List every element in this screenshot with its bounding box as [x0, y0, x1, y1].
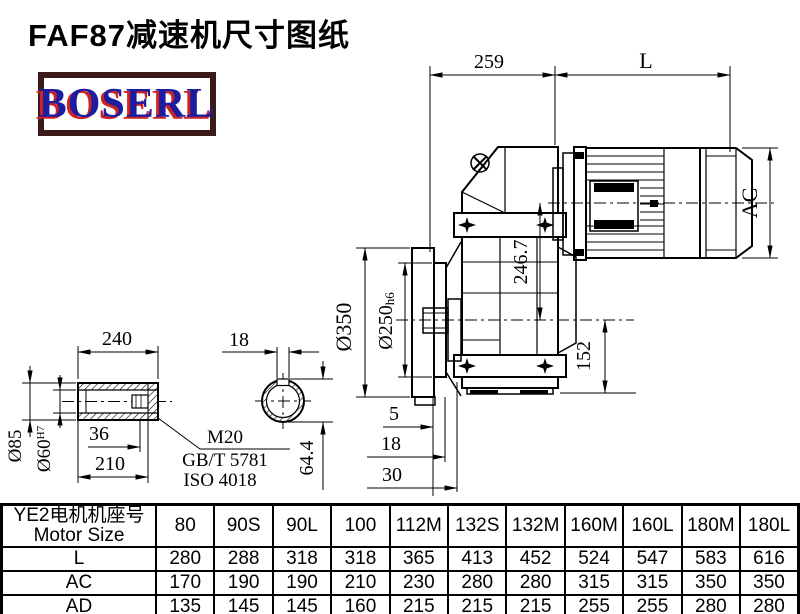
value-L-90L: 318 — [273, 547, 331, 571]
value-L-112M: 365 — [390, 547, 448, 571]
column-header-160M: 160M — [565, 505, 623, 547]
dim-240: 240 — [102, 328, 132, 350]
value-AC-160M: 315 — [565, 571, 623, 595]
dim-30: 30 — [382, 464, 402, 486]
value-L-180M: 583 — [682, 547, 740, 571]
column-header-80: 80 — [156, 505, 214, 547]
value-L-90S: 288 — [214, 547, 272, 571]
column-header-132S: 132S — [448, 505, 506, 547]
column-header-90S: 90S — [214, 505, 272, 547]
dim-152: 152 — [573, 341, 595, 371]
value-L-160L: 547 — [623, 547, 681, 571]
dim-36: 36 — [89, 423, 109, 445]
value-AC-90S: 190 — [214, 571, 272, 595]
column-header-180M: 180M — [682, 505, 740, 547]
value-AD-132M: 215 — [506, 595, 564, 614]
value-L-160M: 524 — [565, 547, 623, 571]
value-L-100: 318 — [331, 547, 389, 571]
table-row-AC: AC170190190210230280280315315350350 — [2, 571, 799, 595]
value-AC-112M: 230 — [390, 571, 448, 595]
label-standard-gb: GB/T 5781 — [182, 450, 268, 471]
value-AD-160M: 255 — [565, 595, 623, 614]
value-AD-180M: 280 — [682, 595, 740, 614]
dim-keyway-height: 64.4 — [296, 441, 318, 476]
motor-size-header: YE2电机机座号Motor Size — [2, 505, 157, 547]
value-AC-100: 210 — [331, 571, 389, 595]
dim-259: 259 — [474, 51, 504, 73]
value-AD-132S: 215 — [448, 595, 506, 614]
dim-spigot-diameter: Ø250h6 — [375, 292, 397, 350]
value-AC-80: 170 — [156, 571, 214, 595]
dim-bore: Ø60H7 — [34, 425, 55, 472]
column-header-132M: 132M — [506, 505, 564, 547]
value-L-132M: 452 — [506, 547, 564, 571]
column-header-112M: 112M — [390, 505, 448, 547]
value-L-80: 280 — [156, 547, 214, 571]
column-header-160L: 160L — [623, 505, 681, 547]
dim-18-face: 18 — [381, 433, 401, 455]
dim-246-7: 246.7 — [510, 240, 532, 285]
centerlines — [62, 203, 776, 429]
value-AD-112M: 215 — [390, 595, 448, 614]
column-header-100: 100 — [331, 505, 389, 547]
value-AC-132S: 280 — [448, 571, 506, 595]
motor-size-table-body: YE2电机机座号Motor Size8090S90L100112M132S132… — [2, 505, 799, 614]
row-label-AD: AD — [2, 595, 157, 614]
value-AD-160L: 255 — [623, 595, 681, 614]
value-AD-100: 160 — [331, 595, 389, 614]
keyway-slot — [277, 379, 289, 386]
motor-size-table: YE2电机机座号Motor Size8090S90L100112M132S132… — [0, 503, 800, 614]
dim-5: 5 — [389, 403, 399, 425]
dim-shaft-od: Ø85 — [5, 430, 26, 463]
dim-210: 210 — [95, 453, 125, 475]
motor-size-header-en: Motor Size — [3, 526, 155, 546]
label-thread: M20 — [207, 427, 243, 448]
value-AD-80: 135 — [156, 595, 214, 614]
value-L-180L: 616 — [740, 547, 798, 571]
dim-L: L — [639, 48, 652, 73]
page: FAF87减速机尺寸图纸 BOSERL — [0, 0, 800, 614]
dim-flange-diameter: Ø350 — [331, 303, 356, 352]
row-label-L: L — [2, 547, 157, 571]
column-header-90L: 90L — [273, 505, 331, 547]
value-AC-90L: 190 — [273, 571, 331, 595]
value-AC-160L: 315 — [623, 571, 681, 595]
value-AC-132M: 280 — [506, 571, 564, 595]
table-row-L: L280288318318365413452524547583616 — [2, 547, 799, 571]
m20-tapped-hole — [132, 395, 148, 408]
value-AC-180L: 350 — [740, 571, 798, 595]
output-flange — [412, 242, 461, 405]
label-standard-iso: ISO 4018 — [183, 470, 256, 491]
dim-AC: AC — [737, 188, 762, 219]
table-row-AD: AD135145145160215215215255255280280 — [2, 595, 799, 614]
value-AD-180L: 280 — [740, 595, 798, 614]
value-AD-90S: 145 — [214, 595, 272, 614]
main-dimensions — [356, 66, 778, 496]
dim-keyway-width: 18 — [229, 329, 249, 351]
row-label-AC: AC — [2, 571, 157, 595]
motor-size-header-cn: YE2电机机座号 — [3, 506, 155, 526]
technical-drawing: 259 L AC 246.7 152 Ø350 Ø250h6 5 18 30 — [0, 0, 800, 505]
value-AD-90L: 145 — [273, 595, 331, 614]
value-AC-180M: 350 — [682, 571, 740, 595]
column-header-180L: 180L — [740, 505, 798, 547]
value-L-132S: 413 — [448, 547, 506, 571]
